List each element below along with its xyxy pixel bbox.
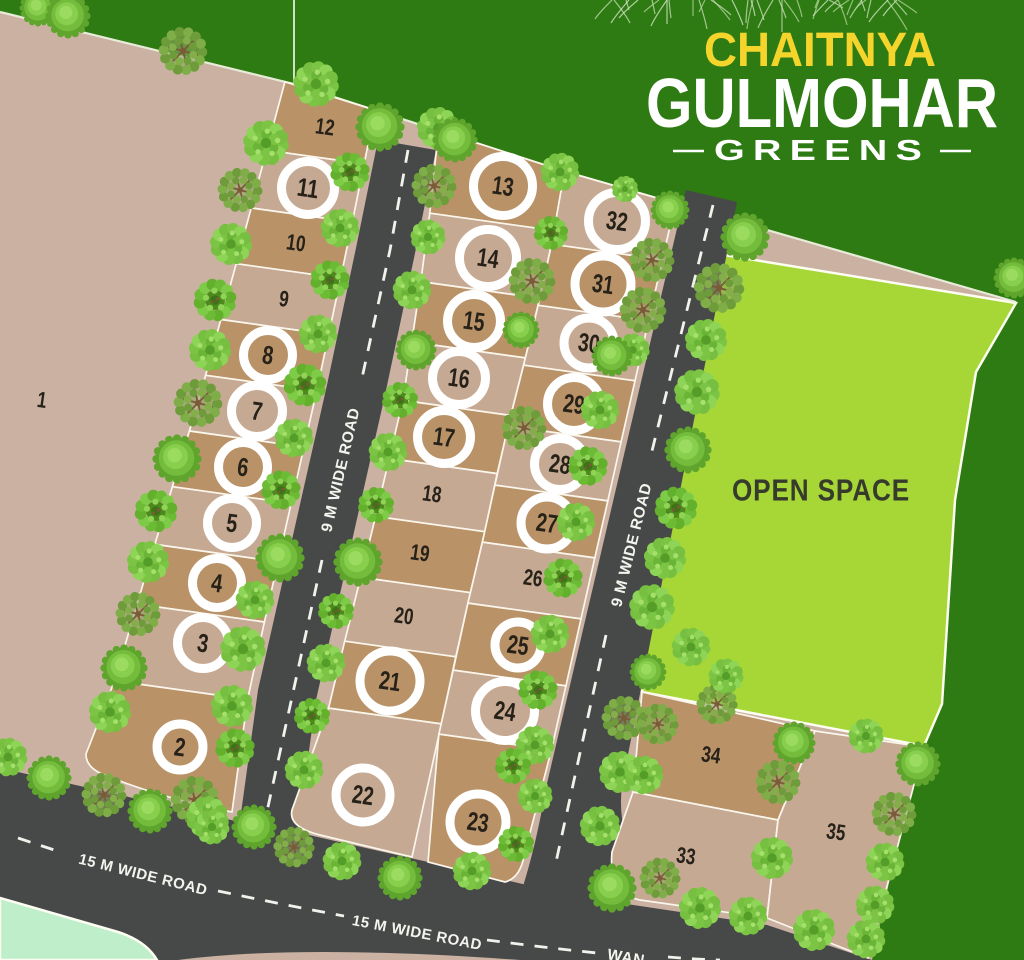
svg-text:12: 12 <box>314 113 336 140</box>
svg-text:23: 23 <box>465 806 490 839</box>
svg-text:OPEN SPACE: OPEN SPACE <box>732 473 910 508</box>
svg-text:34: 34 <box>700 741 723 768</box>
svg-text:13: 13 <box>490 170 515 203</box>
svg-text:21: 21 <box>377 665 402 698</box>
svg-text:25: 25 <box>505 629 530 662</box>
svg-text:27: 27 <box>534 507 559 540</box>
svg-text:26: 26 <box>522 564 544 591</box>
svg-text:15: 15 <box>461 305 486 338</box>
svg-text:28: 28 <box>547 448 572 481</box>
svg-text:10: 10 <box>285 229 307 256</box>
svg-text:22: 22 <box>350 779 375 812</box>
svg-text:17: 17 <box>431 421 456 454</box>
svg-text:35: 35 <box>825 818 847 845</box>
svg-text:GREENS: GREENS <box>714 135 930 167</box>
svg-text:33: 33 <box>675 842 697 869</box>
svg-text:32: 32 <box>604 205 629 238</box>
svg-text:18: 18 <box>421 480 443 507</box>
svg-text:19: 19 <box>409 539 431 566</box>
svg-text:20: 20 <box>393 602 415 629</box>
svg-text:31: 31 <box>590 268 615 301</box>
svg-text:GULMOHAR: GULMOHAR <box>646 64 998 142</box>
svg-text:11: 11 <box>295 172 320 205</box>
svg-text:16: 16 <box>446 362 471 395</box>
